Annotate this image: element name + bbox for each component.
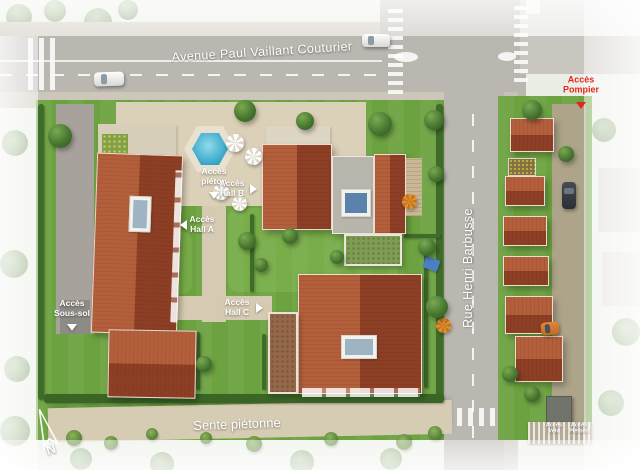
tree (426, 296, 448, 318)
access-label-hall-b: Accès Hall B (215, 179, 249, 199)
shrub (428, 426, 442, 440)
tree (592, 118, 616, 142)
tree (612, 318, 640, 346)
crosswalk (388, 6, 403, 94)
tree (0, 250, 28, 278)
sidewalk-north (0, 22, 382, 36)
hedge (262, 334, 266, 390)
parasol-orange (402, 194, 417, 209)
tree (522, 100, 542, 120)
balconies (302, 388, 420, 397)
tree (150, 452, 174, 470)
tree (2, 130, 28, 156)
hedge (38, 104, 44, 400)
arrow-left-icon (180, 220, 187, 230)
shrub (324, 432, 338, 446)
arrow-down-icon (576, 102, 586, 109)
tree (48, 124, 72, 148)
tree (418, 238, 436, 256)
access-label-hall-a: Accès Hall A (185, 215, 219, 235)
tree (598, 390, 624, 416)
skylight (341, 189, 371, 217)
street-label-sente: Sente piétonne (193, 416, 281, 434)
traffic-island (394, 52, 418, 62)
crosswalk (28, 38, 58, 90)
shed (546, 396, 572, 424)
road-faded-east (520, 14, 640, 74)
shrub (246, 436, 262, 452)
crosswalk (446, 408, 504, 426)
building-b-flat-roof (332, 156, 374, 234)
shrub (200, 432, 212, 444)
building-faded (598, 168, 640, 232)
planted-roof (268, 312, 298, 394)
traffic-island (498, 52, 516, 61)
arrow-down-icon (67, 324, 77, 331)
street-label-rue: Rue Henri Barbusse (461, 208, 475, 328)
parasol (245, 148, 262, 165)
access-label-pompier: Accès Pompier (557, 75, 605, 96)
tree (238, 232, 256, 250)
tree (254, 258, 268, 272)
building-c-roof (298, 274, 422, 394)
tree (296, 112, 314, 130)
house-roof (515, 336, 563, 382)
house-roof (505, 176, 545, 206)
arrow-right-icon (256, 303, 263, 313)
building-a-roof (91, 153, 183, 336)
house-roof (503, 216, 547, 246)
access-label-hall-c: Accès Hall C (220, 298, 254, 318)
hedge (250, 214, 254, 292)
tree (380, 448, 402, 470)
tree (4, 356, 30, 382)
tree (118, 0, 138, 20)
access-label-pietons: Accès Piétons (564, 423, 594, 436)
building-b-roof (262, 144, 332, 230)
tree (234, 100, 256, 122)
car (540, 321, 559, 336)
site-plan-aerial-view: Avenue Paul Vaillant Couturier Rue Henri… (0, 0, 640, 470)
tree (558, 146, 574, 162)
terrace (266, 126, 330, 144)
shrub (396, 434, 412, 450)
tree (44, 0, 66, 22)
tree (330, 250, 344, 264)
car (94, 71, 124, 86)
parasol-orange (436, 318, 451, 333)
tree (502, 366, 518, 382)
skylight (341, 335, 377, 359)
tree (282, 228, 298, 244)
roof-planter (102, 134, 128, 154)
house-roof (503, 256, 549, 286)
car (562, 182, 576, 209)
shrub (146, 428, 158, 440)
building-b-east-roof (374, 154, 406, 234)
garden-planter (508, 158, 536, 176)
tree (424, 110, 444, 130)
arrow-right-icon (250, 184, 257, 194)
hedge (436, 104, 443, 396)
tree (428, 166, 444, 182)
car (362, 34, 390, 47)
parasol (226, 134, 244, 152)
green-roof (344, 234, 402, 266)
crosswalk (514, 6, 528, 82)
shrub (104, 436, 118, 450)
fade-overlay-bottom (0, 440, 640, 470)
access-label-sous-sol: Accès Sous-sol (49, 299, 95, 319)
house-roof (510, 118, 554, 152)
tree (196, 356, 212, 372)
tree (290, 450, 314, 470)
tree (368, 112, 392, 136)
hedge (404, 234, 440, 238)
tree (524, 386, 540, 402)
building-faded (602, 252, 640, 306)
skylight (128, 196, 151, 233)
building-a-south-wing-roof (107, 329, 196, 399)
